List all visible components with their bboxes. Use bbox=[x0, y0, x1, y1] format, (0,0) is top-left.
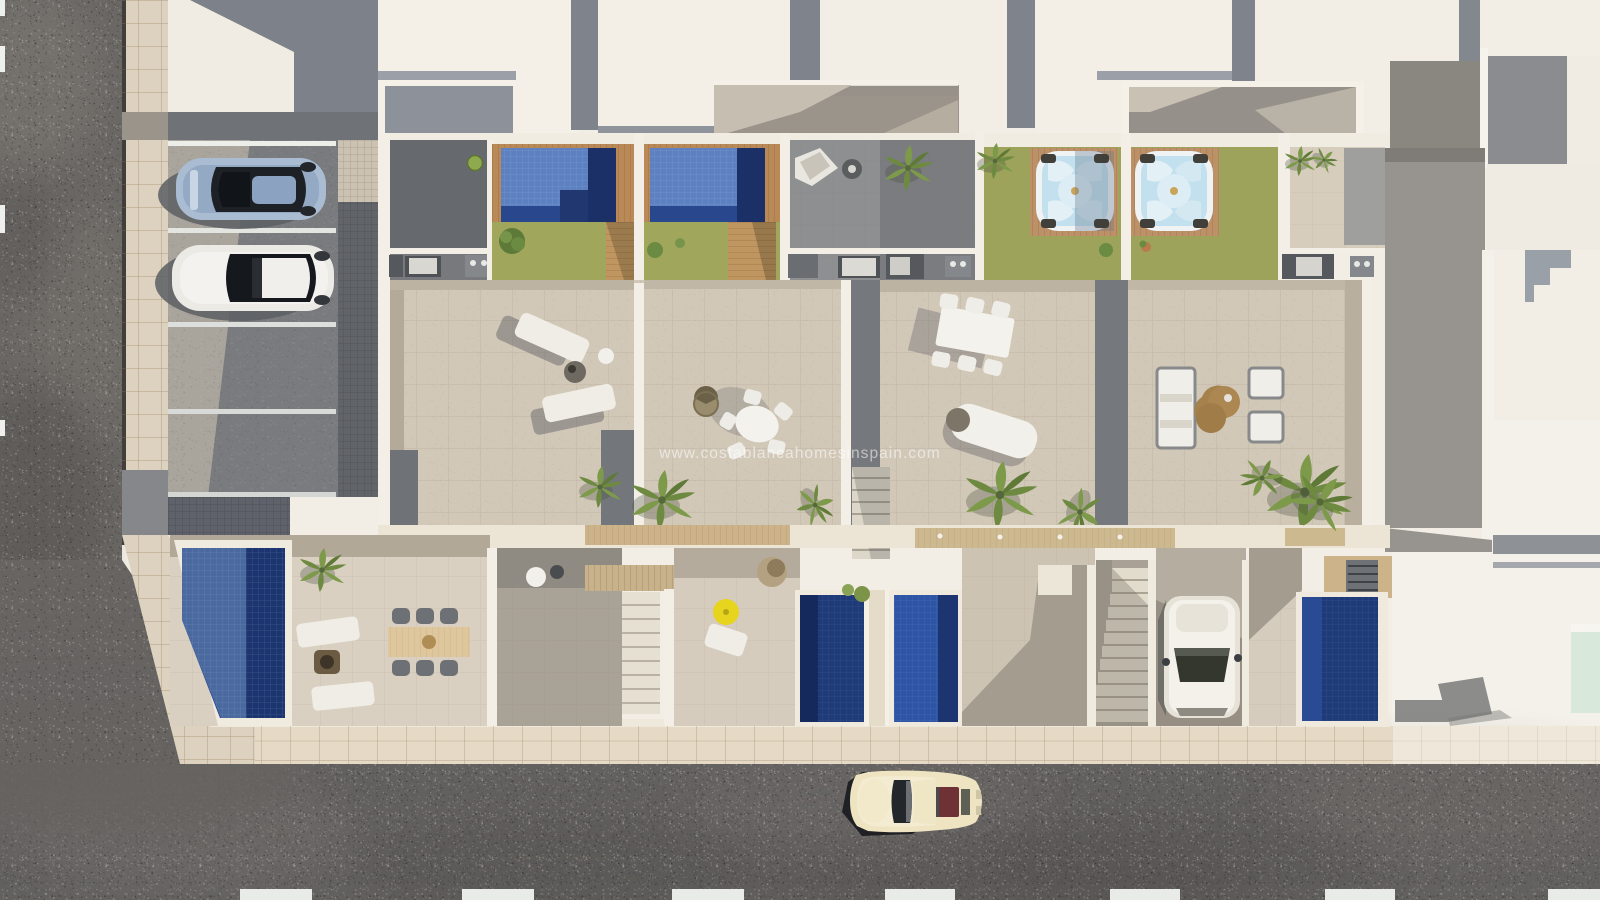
svg-text:www.costablancahomesinspain.co: www.costablancahomesinspain.com bbox=[658, 445, 941, 462]
